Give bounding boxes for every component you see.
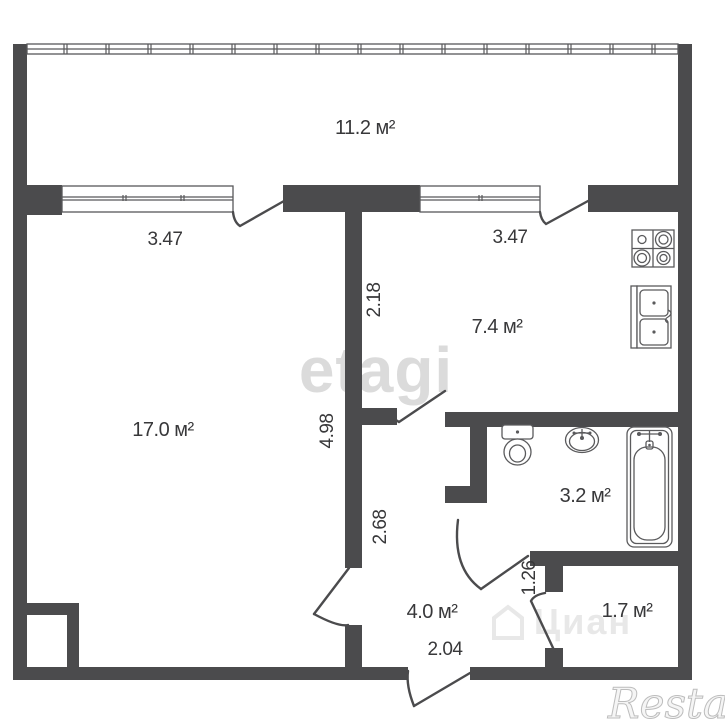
interior-wall-living-lower: [345, 625, 362, 667]
kitchen-sink-icon: [631, 286, 671, 348]
etagi-watermark: etagi: [299, 334, 453, 406]
dim-kitchen-window: 3.47: [493, 227, 528, 248]
storage-area-label: 1.7 м²: [602, 600, 654, 622]
living-window-frame: [62, 186, 233, 212]
dim-living-depth: 4.98: [317, 414, 338, 449]
bathroom-area-label: 3.2 м²: [560, 485, 612, 507]
outer-wall-bottom-left: [13, 667, 408, 680]
wall-storage-left-upper: [545, 551, 563, 592]
dim-hallway-width: 2.04: [428, 639, 464, 660]
floor-plan-canvas: etagi Циан: [0, 0, 725, 725]
kitchen-window-frame: [420, 186, 540, 212]
toilet-icon: [502, 425, 533, 465]
living-area-label: 17.0 м²: [132, 419, 194, 441]
stove-icon: [632, 230, 674, 267]
dim-storage-entry: 1.26: [519, 561, 540, 596]
balcony-glazing: [27, 44, 678, 54]
wall-niche-right: [67, 615, 79, 667]
outer-wall-left: [13, 44, 27, 680]
wall-band-segment-left: [27, 185, 62, 215]
wall-bathroom-left: [470, 427, 487, 503]
washbasin-icon: [566, 428, 599, 453]
interior-wall-living-upper: [345, 212, 362, 568]
restate-watermark: Restate: [607, 679, 725, 725]
wall-band-segment-right: [588, 185, 678, 212]
dim-kitchen-depth: 2.18: [364, 283, 385, 318]
kitchen-window: [420, 186, 540, 212]
hallway-area-label: 4.0 м²: [407, 601, 459, 623]
balcony-area-label: 11.2 м²: [335, 117, 396, 139]
dim-hallway-depth: 2.68: [370, 510, 391, 545]
wall-bathroom-top: [445, 412, 678, 427]
wall-bathroom-left-nib: [445, 486, 472, 503]
dim-living-window: 3.47: [148, 229, 183, 250]
kitchen-area-label: 7.4 м²: [472, 316, 524, 338]
wall-niche-top: [25, 603, 79, 615]
outer-wall-right: [678, 44, 692, 680]
bathtub-icon: [627, 427, 672, 547]
wall-band-segment-middle: [283, 185, 420, 212]
living-room-window: [62, 186, 233, 212]
